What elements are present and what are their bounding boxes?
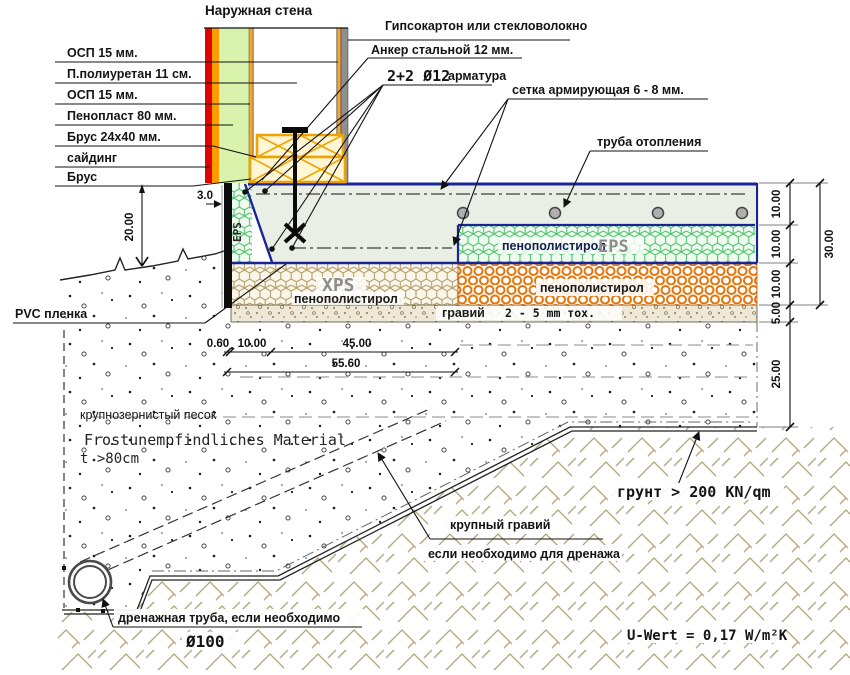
frost-material-label: Frostunempfindliches Material [84, 431, 346, 449]
mesh-label: сетка армирующая 6 - 8 мм. [512, 83, 684, 97]
u-value-label: U-Wert = 0,17 W/m²K [627, 628, 788, 644]
dim-5560: 55.60 [332, 358, 361, 370]
foam-layer [219, 28, 249, 183]
rebar-code-label: 2+2 Ø12 [387, 67, 450, 85]
soil-bearing-label: грунт > 200 KN/qm [617, 483, 771, 501]
siding-layer [205, 28, 212, 183]
drain-pipe-label: дренажная труба, если необходимо [118, 611, 341, 625]
wall-layer-label-polyurethane: П.полиуретан 11 см. [67, 67, 192, 81]
dim-edge: 3.0 [197, 190, 213, 202]
coarse-gravel-label: крупный гравий [450, 518, 550, 532]
dim-060: 0.60 [207, 338, 229, 350]
anchor-label: Анкер стальной 12 мм. [371, 43, 513, 57]
wall-layer-label-siding: сайдинг [67, 151, 117, 165]
gravel-label: гравий [442, 306, 485, 320]
heating-pipe-label: труба отопления [597, 135, 701, 149]
pvc-label: PVC пленка [15, 307, 88, 321]
dim-r6: 30.00 [824, 230, 836, 259]
dim-r3: 10.00 [771, 270, 783, 299]
dim-r5: 25.00 [771, 360, 783, 389]
wall-layer-label-foam: Пенопласт 80 мм. [67, 109, 176, 123]
gypsum-label: Гипсокартон или стекловолокно [385, 19, 588, 33]
dim-10: 10.00 [238, 338, 267, 350]
gravel-size-label: 2 - 5 mm тох. [505, 306, 595, 320]
pvc-membrane-edge [224, 181, 232, 308]
eps-layer-label: пенополистирол [502, 239, 606, 253]
dim-45: 45.00 [343, 338, 372, 350]
wall-layer-label-osb1: ОСП 15 мм. [67, 46, 138, 60]
pipe-diameter-label: Ø100 [185, 632, 225, 651]
wall-layer-label-osb2: ОСП 15 мм. [67, 88, 138, 102]
eps-edge-label: EPS [231, 222, 244, 242]
xps-layer-label: пенополистирол [294, 292, 398, 306]
dim-r4: 5.00 [771, 302, 783, 324]
rebar-word-label: арматура [448, 69, 507, 83]
dim-r1: 10.00 [771, 190, 783, 219]
drawing-canvas: Наружная стена ОСП 15 мм. П.полиуретан 1… [0, 0, 850, 675]
wall-layer-label-beam: Брус [67, 170, 97, 184]
dim-r2: 10.00 [771, 230, 783, 259]
base-timber-beams [250, 135, 345, 182]
foundation-cross-section-drawing: Наружная стена ОСП 15 мм. П.полиуретан 1… [0, 0, 850, 675]
wall-layer-label-timber: Брус 24x40 мм. [67, 130, 161, 144]
batten-layer [212, 28, 219, 183]
pur-layer-label: пенополистирол [540, 281, 644, 295]
frost-depth-label: t >80cm [80, 451, 139, 467]
sand-label: крупнозернистый песок [80, 408, 217, 422]
eps-layer-code: EPS [598, 237, 629, 257]
wall-title-label: Наружная стена [205, 3, 313, 18]
drainage-note-label: если необходимо для дренажа [428, 547, 621, 561]
dim-wall-height: 20.00 [124, 213, 136, 242]
